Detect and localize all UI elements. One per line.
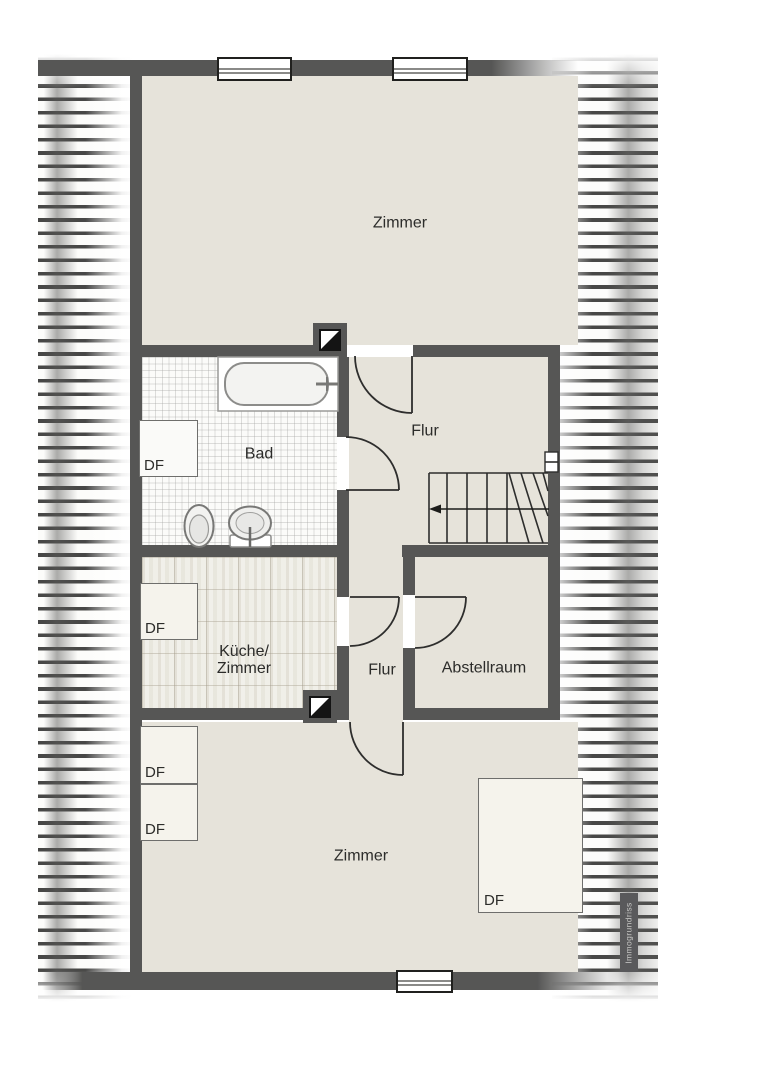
skylight-label: DF <box>145 821 165 838</box>
window-pane-line <box>219 68 290 70</box>
wall-bad-east-upper <box>337 357 349 437</box>
window-bottom <box>396 970 453 993</box>
skylight-label: DF <box>145 764 165 781</box>
wall-bottom <box>42 972 618 990</box>
skylight-zimmer-bottom-upper: DF <box>140 726 198 784</box>
room-label-kueche-line1: Küche/ <box>217 643 271 660</box>
skylight-kueche: DF <box>140 583 198 640</box>
room-label-zimmer-top: Zimmer <box>373 215 427 232</box>
chimney-block-lower <box>303 690 337 723</box>
wall-left <box>130 60 142 990</box>
wall-kueche-east-lower <box>337 646 349 708</box>
room-label-flur-lower: Flur <box>368 662 396 679</box>
watermark-badge: Immogrundriss <box>620 893 638 972</box>
floor-plan-page: DF DF DF DF DF Zimmer Bad Flur Küche/ Zi… <box>0 0 763 1080</box>
roof-hatching-left <box>38 44 133 1014</box>
window-pane-line <box>394 72 466 74</box>
wall-abstellraum-south <box>403 708 560 720</box>
wall-right-middle <box>548 345 560 720</box>
wall-bad-east-lower <box>337 490 349 545</box>
skylight-zimmer-bottom-lower: DF <box>140 784 198 841</box>
room-flur-upper <box>349 357 548 545</box>
skylight-zimmer-bottom-large: DF <box>478 778 583 913</box>
room-label-kueche-zimmer: Küche/ Zimmer <box>217 643 271 677</box>
skylight-label: DF <box>145 620 165 637</box>
wall-abstellraum-west-upper <box>403 557 415 595</box>
wall-stairs-south <box>402 545 560 557</box>
skylight-label: DF <box>484 892 504 909</box>
room-zimmer-top <box>142 76 578 345</box>
room-abstellraum <box>415 557 548 708</box>
wall-kueche-east-upper <box>337 557 349 597</box>
window-pane-line <box>394 68 466 70</box>
chimney-icon <box>309 696 331 718</box>
skylight-bad: DF <box>139 420 198 477</box>
window-pane-line <box>398 984 451 986</box>
window-top-left <box>217 57 292 81</box>
watermark-text: Immogrundriss <box>624 902 634 963</box>
room-flur-lower <box>349 545 403 722</box>
room-label-zimmer-bottom: Zimmer <box>334 848 388 865</box>
wall-bad-south <box>130 545 349 557</box>
wall-zimmer-south-left <box>130 345 313 357</box>
window-top-right <box>392 57 468 81</box>
skylight-label: DF <box>144 457 164 474</box>
chimney-block-upper <box>313 323 347 357</box>
wall-abstellraum-west-lower <box>403 648 415 720</box>
window-pane-line <box>398 980 451 982</box>
wall-zimmer-south-right <box>413 345 560 357</box>
room-label-abstellraum: Abstellraum <box>442 660 526 677</box>
chimney-icon <box>319 329 341 351</box>
wall-top <box>38 60 578 76</box>
room-label-flur-upper: Flur <box>411 423 439 440</box>
room-label-bad: Bad <box>245 446 273 463</box>
window-pane-line <box>219 72 290 74</box>
room-label-kueche-line2: Zimmer <box>217 660 271 677</box>
